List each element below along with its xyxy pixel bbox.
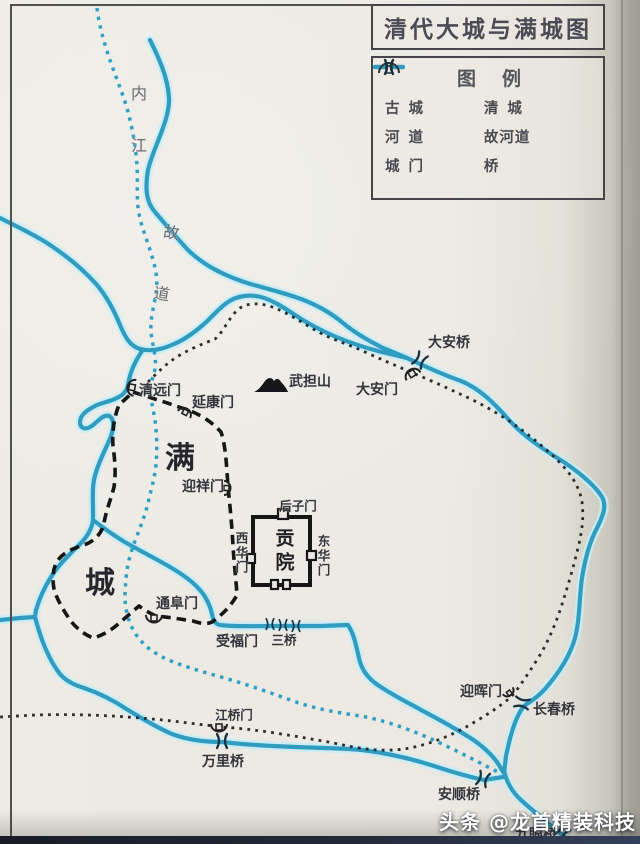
legend-item-ancient-city: 古城	[385, 97, 480, 118]
mountain-icon	[254, 378, 288, 392]
tongfu-gate-icon	[146, 615, 162, 623]
map-border-left	[10, 4, 12, 837]
photo-edge-bottom	[0, 836, 640, 844]
south-wall-notch	[271, 580, 278, 589]
paper-fold-line	[621, 0, 623, 844]
label-wanli-bridge: 万里桥	[202, 751, 244, 771]
legend-heading: 图例	[385, 64, 593, 91]
yinghui-gate-icon	[503, 687, 516, 698]
label-cheng-char: 城	[85, 558, 115, 602]
legend-panel: 图例 古城 清城 河道 故河道 城门	[371, 56, 605, 200]
label-yingxiang-gate: 迎祥门	[182, 476, 224, 496]
daan-gate-icon	[403, 366, 421, 380]
label-anshun-bridge: 安顺桥	[438, 784, 480, 804]
map-title: 清代大城与满城图	[384, 10, 592, 44]
label-yankang-gate: 延康门	[192, 392, 234, 412]
legend-item-qing-city: 清城	[484, 97, 593, 118]
legend-item-old-river: 故河道	[484, 126, 593, 147]
map-title-panel: 清代大城与满城图	[371, 4, 605, 50]
legend-item-city-gate: 城门	[385, 155, 480, 176]
label-man-char: 满	[165, 433, 195, 477]
label-yinghui-gate: 迎晖门	[460, 681, 502, 701]
label-gongyuan: 贡院	[271, 528, 298, 576]
scanned-map-photo: 清代大城与满城图 图例 古城 清城 河道 故河道 城门	[0, 0, 640, 844]
label-donghua-gate: 东华门	[314, 534, 333, 578]
label-daan-bridge: 大安桥	[428, 332, 470, 352]
south-wall-notch	[283, 580, 290, 589]
label-tongfu-gate: 通阜门	[156, 593, 198, 613]
watermark: 头条 @龙首精装科技	[439, 806, 636, 835]
label-san-bridge: 三桥	[271, 630, 296, 649]
legend-item-river: 河道	[385, 126, 480, 147]
label-houzi-gate: 后子门	[279, 496, 317, 515]
label-changchun-bridge: 长春桥	[533, 699, 575, 719]
label-daan-gate: 大安门	[356, 379, 398, 399]
label-xihua-gate: 西华门	[232, 531, 251, 575]
label-qingyuan-gate: 清远门	[139, 380, 181, 400]
label-shoufu-gate: 受福门	[216, 631, 258, 651]
legend-grid: 古城 清城 河道 故河道 城门 桥	[385, 97, 593, 176]
label-jiangqiao-gate: 江桥门	[215, 705, 253, 724]
label-wudan-mountain: 武担山	[289, 371, 331, 391]
yingxiang-gate-icon	[224, 481, 231, 495]
label-neijiang-river: 内江	[125, 85, 149, 189]
bridge-icon	[373, 58, 405, 76]
legend-item-bridge: 桥	[484, 155, 593, 176]
